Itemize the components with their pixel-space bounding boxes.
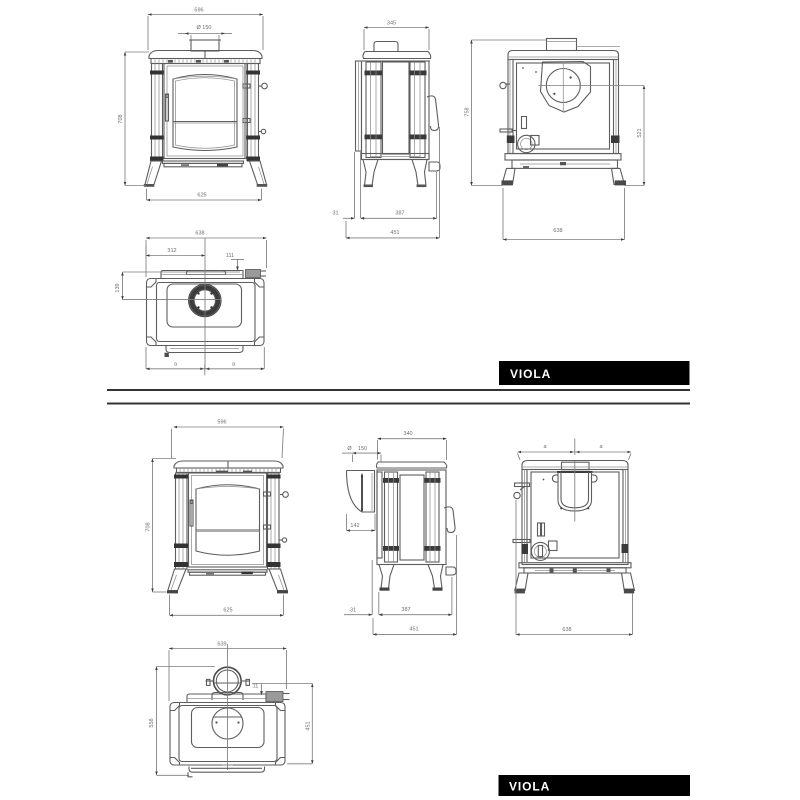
svg-text:11: 11 — [253, 684, 259, 690]
svg-text:558: 558 — [149, 718, 155, 727]
svg-text:638: 638 — [553, 228, 562, 234]
svg-text:521: 521 — [637, 128, 643, 137]
svg-text:340: 340 — [403, 431, 412, 437]
svg-text:VIOLA: VIOLA — [510, 367, 551, 381]
svg-text:638: 638 — [195, 231, 204, 237]
svg-text:625: 625 — [223, 608, 232, 614]
svg-text:451: 451 — [409, 627, 418, 633]
svg-text:387: 387 — [401, 607, 410, 613]
svg-text:387: 387 — [395, 211, 404, 217]
svg-text:111: 111 — [226, 253, 234, 259]
svg-text:596: 596 — [217, 420, 226, 426]
svg-text:Ø 150: Ø 150 — [197, 25, 212, 31]
svg-text:625: 625 — [197, 193, 206, 199]
svg-text:31: 31 — [350, 608, 356, 614]
svg-text:142: 142 — [350, 523, 359, 529]
svg-text:Ø: Ø — [347, 446, 352, 452]
svg-text:708: 708 — [146, 522, 152, 531]
svg-text:150: 150 — [358, 446, 367, 452]
svg-text:758: 758 — [465, 107, 471, 116]
svg-text:596: 596 — [194, 8, 203, 14]
svg-text:708: 708 — [118, 114, 124, 123]
svg-text:31: 31 — [332, 211, 338, 217]
svg-text:451: 451 — [305, 721, 311, 730]
svg-text:345: 345 — [387, 21, 396, 27]
svg-text:639: 639 — [217, 642, 226, 648]
svg-text:451: 451 — [390, 230, 399, 236]
svg-text:312: 312 — [167, 248, 176, 254]
svg-text:638: 638 — [562, 627, 571, 633]
svg-text:VIOLA: VIOLA — [509, 780, 550, 794]
svg-text:139: 139 — [115, 283, 121, 292]
